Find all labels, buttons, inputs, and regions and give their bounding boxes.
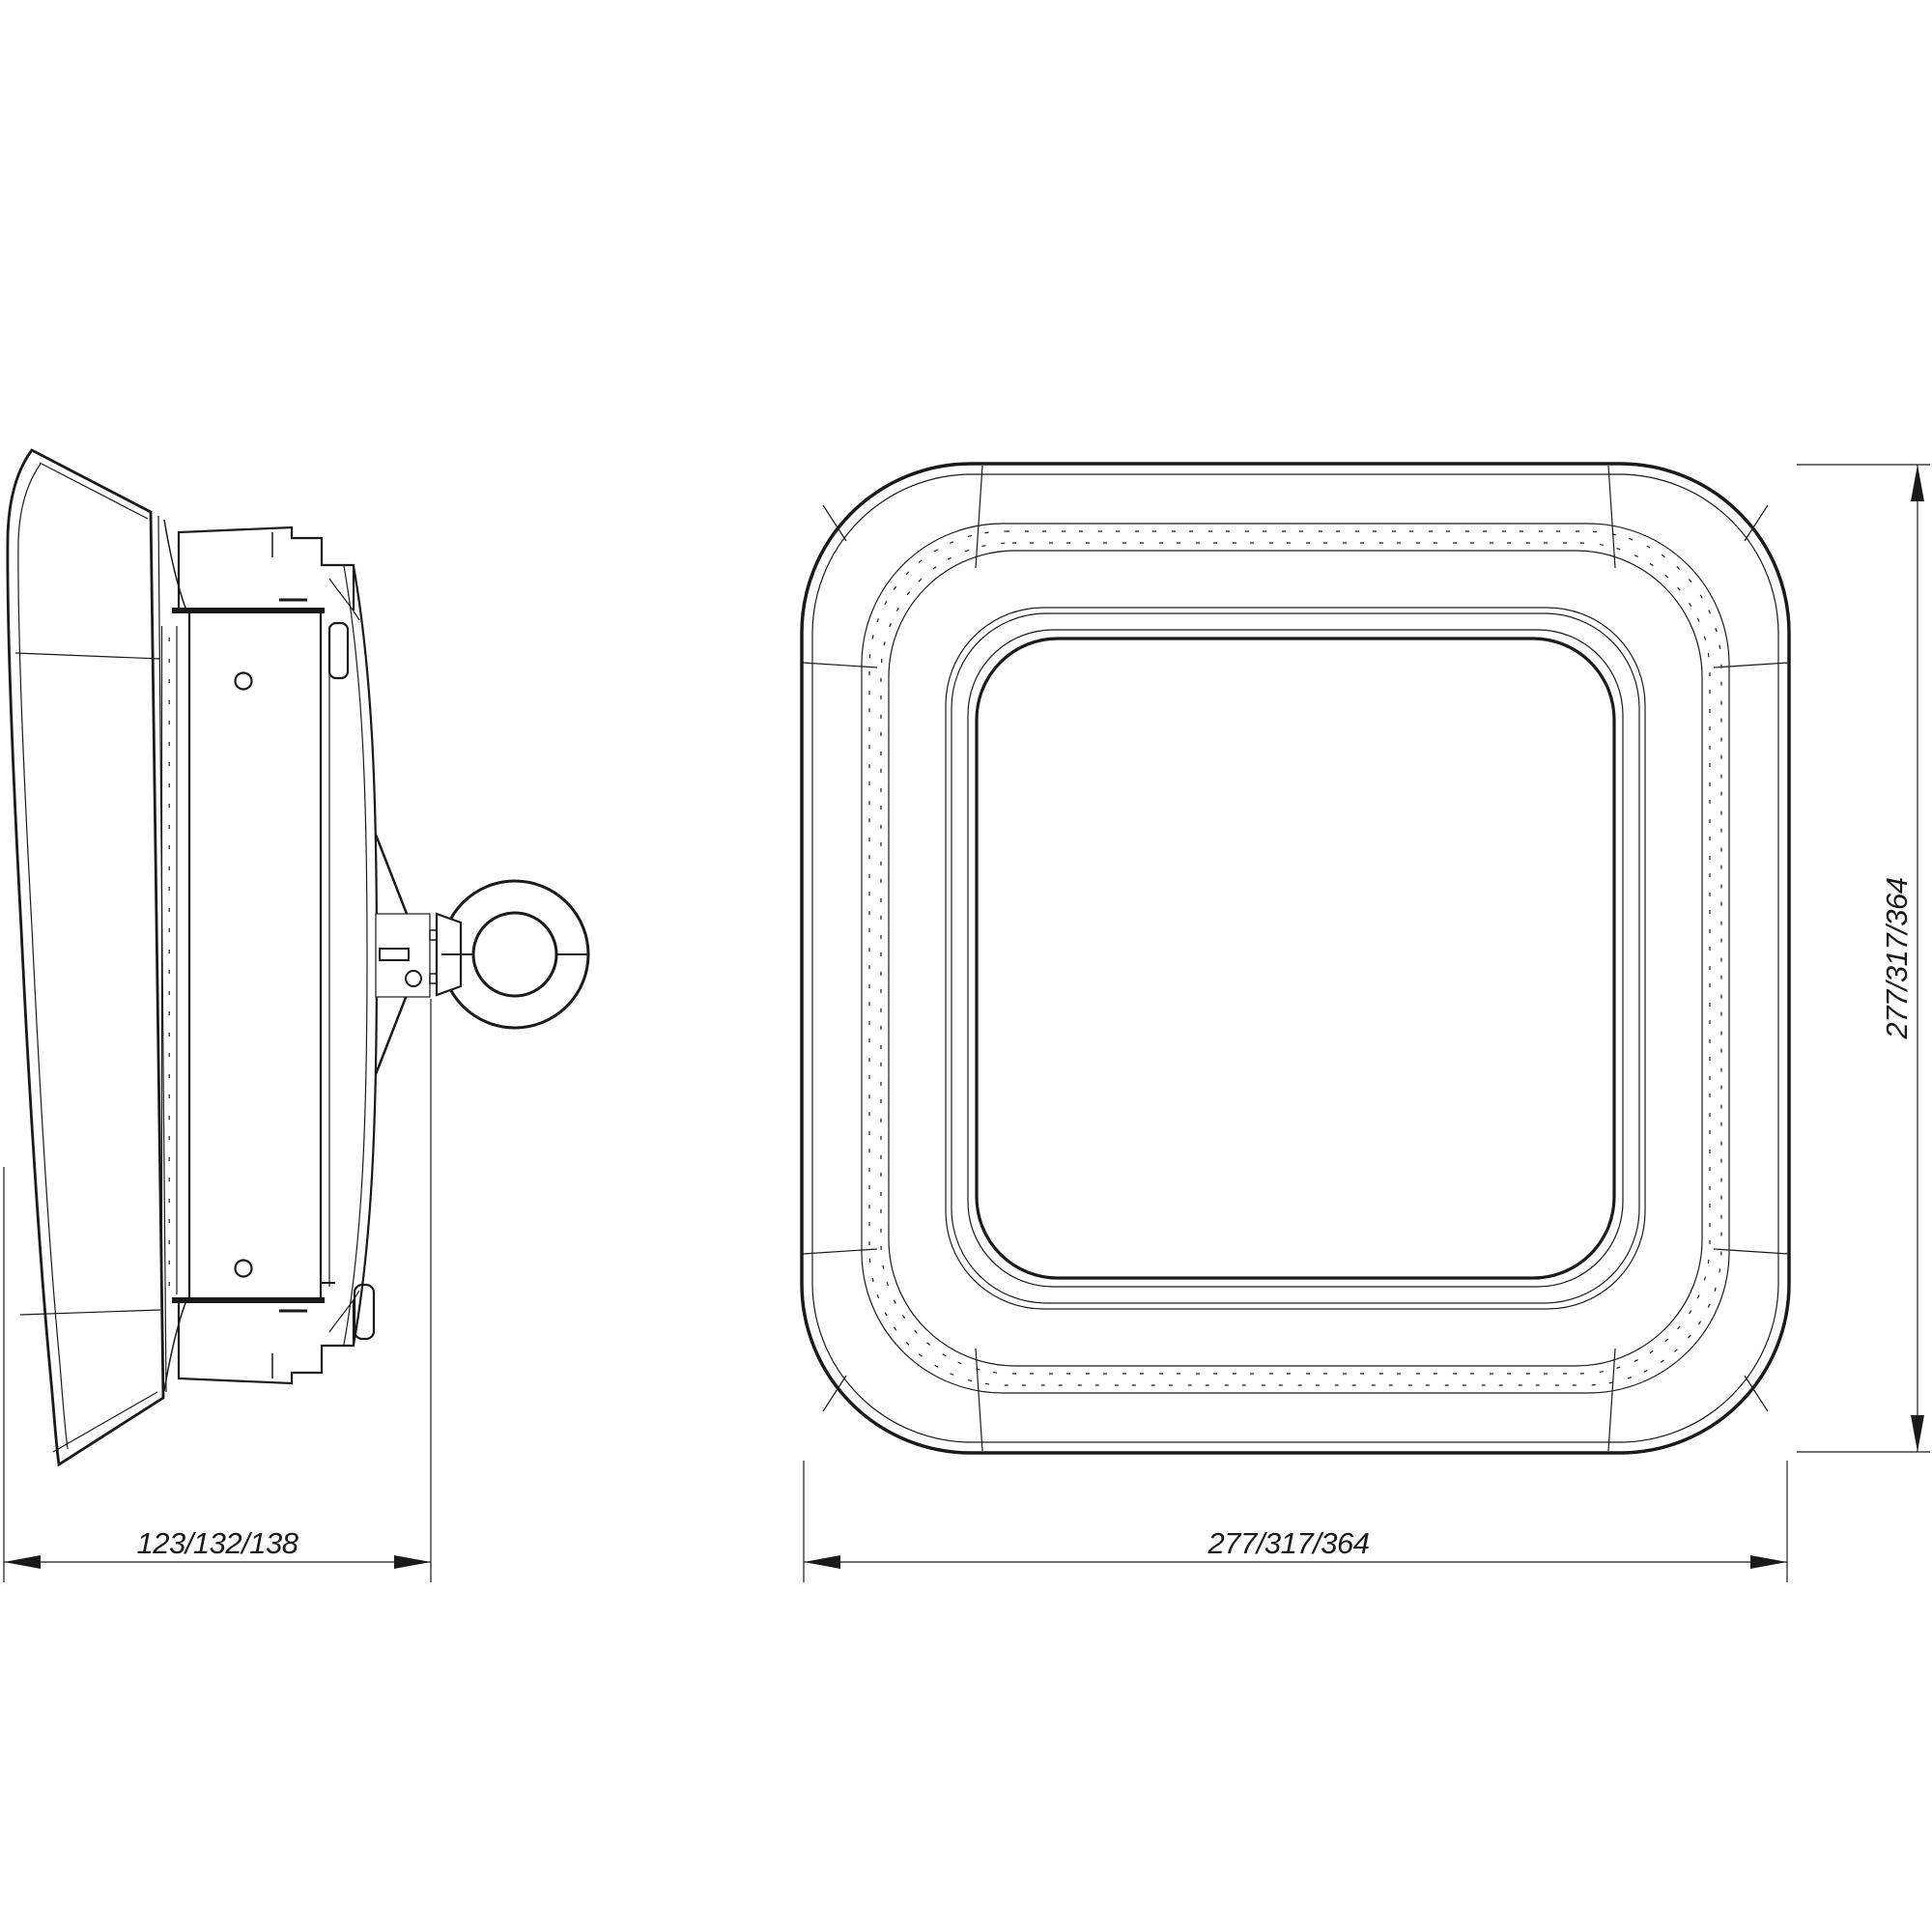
drawing-canvas: 123/132/138 277/317/364 277/317/364 — [0, 0, 1932, 1932]
dimension-label-side-width: 123/132/138 — [137, 1526, 299, 1560]
dimension-label-front-width: 277/317/364 — [1207, 1526, 1370, 1560]
eye-bolt-ring-inner — [473, 913, 556, 996]
drawing-background — [0, 0, 1932, 1932]
plate-slot — [380, 949, 409, 960]
technical-drawing: 123/132/138 277/317/364 277/317/364 — [0, 0, 1932, 1932]
dimension-label-front-height: 277/317/364 — [1880, 877, 1914, 1039]
